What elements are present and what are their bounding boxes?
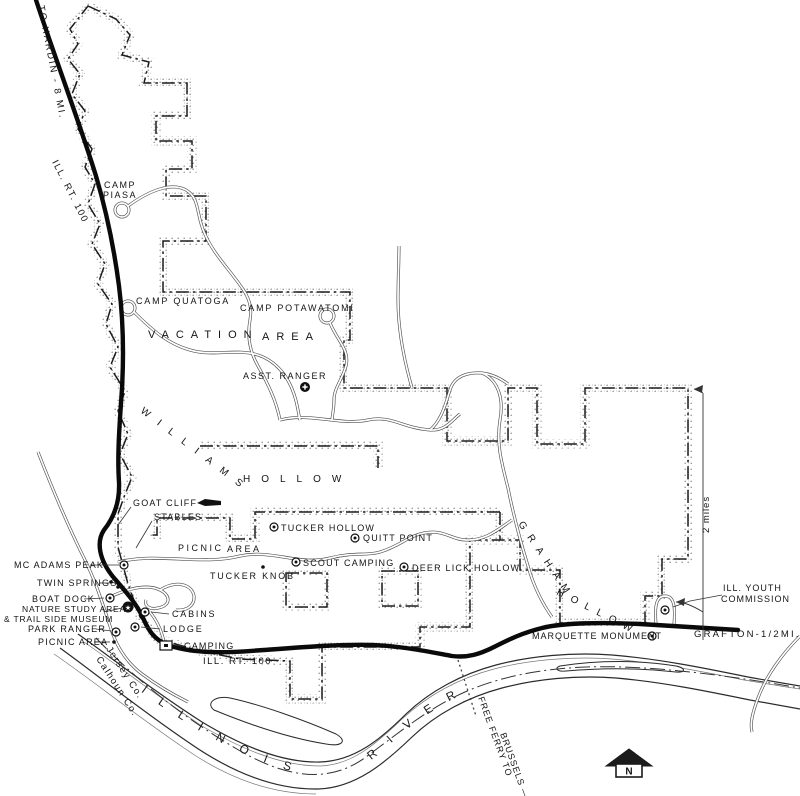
road-fill-7 (430, 373, 508, 430)
north-arrow: N (606, 749, 652, 778)
boundary-line-0 (68, 6, 688, 699)
symbol-ring-dot (270, 523, 278, 531)
label-camp-quatoga: CAMP QUATOGA (136, 296, 230, 306)
label-vacation: VACATION (148, 329, 259, 341)
poi-dot (115, 631, 118, 634)
label-lodge: LODGE (163, 624, 204, 634)
leader-line-10 (136, 521, 152, 548)
symbol-ring-dot (400, 563, 408, 571)
label-park-ranger: PARK RANGER (28, 624, 106, 634)
label-camping: CAMPING (184, 641, 234, 651)
poi-dot (144, 611, 147, 614)
label-to-hardin: TO HARDIN - 8 MI. (35, 4, 68, 120)
symbol-dot (261, 565, 265, 569)
label-marquette-monument: MARQUETTE MONUMENT (532, 631, 662, 641)
symbol-ring-dot (106, 594, 114, 602)
poi-dot (664, 609, 667, 612)
river-bank-1 (60, 648, 800, 789)
symbol-cliff-bar (197, 499, 221, 506)
park-map-page: ★ TO HARDIN - 8 MI.ILL. RT. 100CAMPPIASA… (0, 0, 800, 796)
river-name-river: R I V E R (364, 685, 464, 763)
label-picnic-center-area: AREA (227, 544, 262, 554)
road-casing-7 (430, 373, 508, 430)
boundary-stipple-0 (68, 6, 688, 699)
label-mc-adams-peak: MC ADAMS PEAK (14, 560, 104, 570)
goat-cliff-icon (197, 499, 221, 506)
poi-dot (403, 566, 406, 569)
symbol-ring-dot (131, 623, 139, 631)
leader-line-11 (690, 595, 722, 601)
label-twin-springs: TWIN SPRINGS (37, 578, 117, 588)
label-picnic-west: PICNIC AREA (38, 637, 108, 647)
label-commission: COMMISSION (721, 594, 790, 604)
label-quitt-point: QUITT POINT (363, 533, 433, 543)
label-williams: WILLIAMS (138, 406, 253, 497)
symbol-ring-dot (112, 628, 120, 636)
label-picnic-center: PICNIC (178, 543, 224, 553)
leader-line-6 (151, 612, 169, 614)
poi-dot (295, 561, 298, 564)
label-camp-piasa-2: PIASA (103, 190, 137, 200)
county-line (96, 638, 800, 774)
label-cabins: CABINS (172, 609, 216, 619)
label-trail-side-museum: & TRAIL SIDE MUSEUM (4, 614, 113, 624)
river-name-river-textpath: R I V E R (364, 685, 464, 763)
label-ill-youth: ILL. YOUTH (723, 583, 782, 593)
road-casing-8 (398, 246, 412, 388)
road-fill-0 (115, 203, 129, 217)
label-scout-camping: SCOUT CAMPING (303, 558, 394, 568)
symbol-dot (112, 640, 116, 644)
poi-dot (261, 565, 265, 569)
label-tucker-knob: TUCKER KNOB (210, 571, 295, 581)
symbol-ring-dot (292, 558, 300, 566)
label-ill-rt-100-bottom: ILL. RT. 100 (203, 656, 272, 667)
poi-dot (123, 564, 126, 567)
symbol-ring-dot (661, 606, 669, 614)
boundary-line-5 (382, 571, 418, 606)
label-tucker-hollow: TUCKER HOLLOW (281, 523, 375, 533)
poi-dot (273, 526, 276, 529)
label-deer-lick-hollow: DEER LICK HOLLOW (412, 563, 520, 573)
label-williams-hollow: HOLLOW (243, 474, 352, 485)
boundary-stipple-layer (68, 6, 688, 699)
poi-dot (109, 597, 112, 600)
symbol-ring-dot (141, 608, 149, 616)
label-camp-potawatomi: CAMP POTAWATOMI (240, 303, 355, 313)
label-stables: STABLES (154, 512, 202, 522)
symbol-ring-dot (120, 561, 128, 569)
label-asst-ranger: ASST. RANGER (243, 371, 327, 381)
park-map: ★ TO HARDIN - 8 MI.ILL. RT. 100CAMPPIASA… (0, 0, 800, 796)
boundary-stipple-5 (382, 571, 418, 606)
poi-dot (354, 537, 357, 540)
symbol-cross-circle (300, 382, 310, 392)
north-arrow-label: N (625, 767, 632, 778)
poi-dot (134, 626, 137, 629)
camping-square-inner (164, 644, 168, 647)
boundary-stipple-3 (200, 446, 378, 468)
poi-dot (112, 640, 116, 644)
label-nature-study-area: NATURE STUDY AREA (22, 604, 126, 614)
boundary-layer (68, 6, 688, 699)
label-camp-piasa-1: CAMP (104, 180, 136, 190)
label-two-miles: 2 miles (701, 496, 712, 533)
label-boat-dock: BOAT DOCK (32, 594, 95, 604)
measure-arrowhead-0 (694, 385, 703, 393)
symbol-square (160, 641, 172, 650)
measure-arrowhead-1 (676, 598, 685, 606)
label-grafton: GRAFTON-1/2MI. (694, 629, 800, 640)
label-goat-cliff: GOAT CLIFF (133, 498, 197, 508)
label-vacation-area: AREA (262, 331, 320, 343)
symbol-ring-dot (351, 534, 359, 542)
